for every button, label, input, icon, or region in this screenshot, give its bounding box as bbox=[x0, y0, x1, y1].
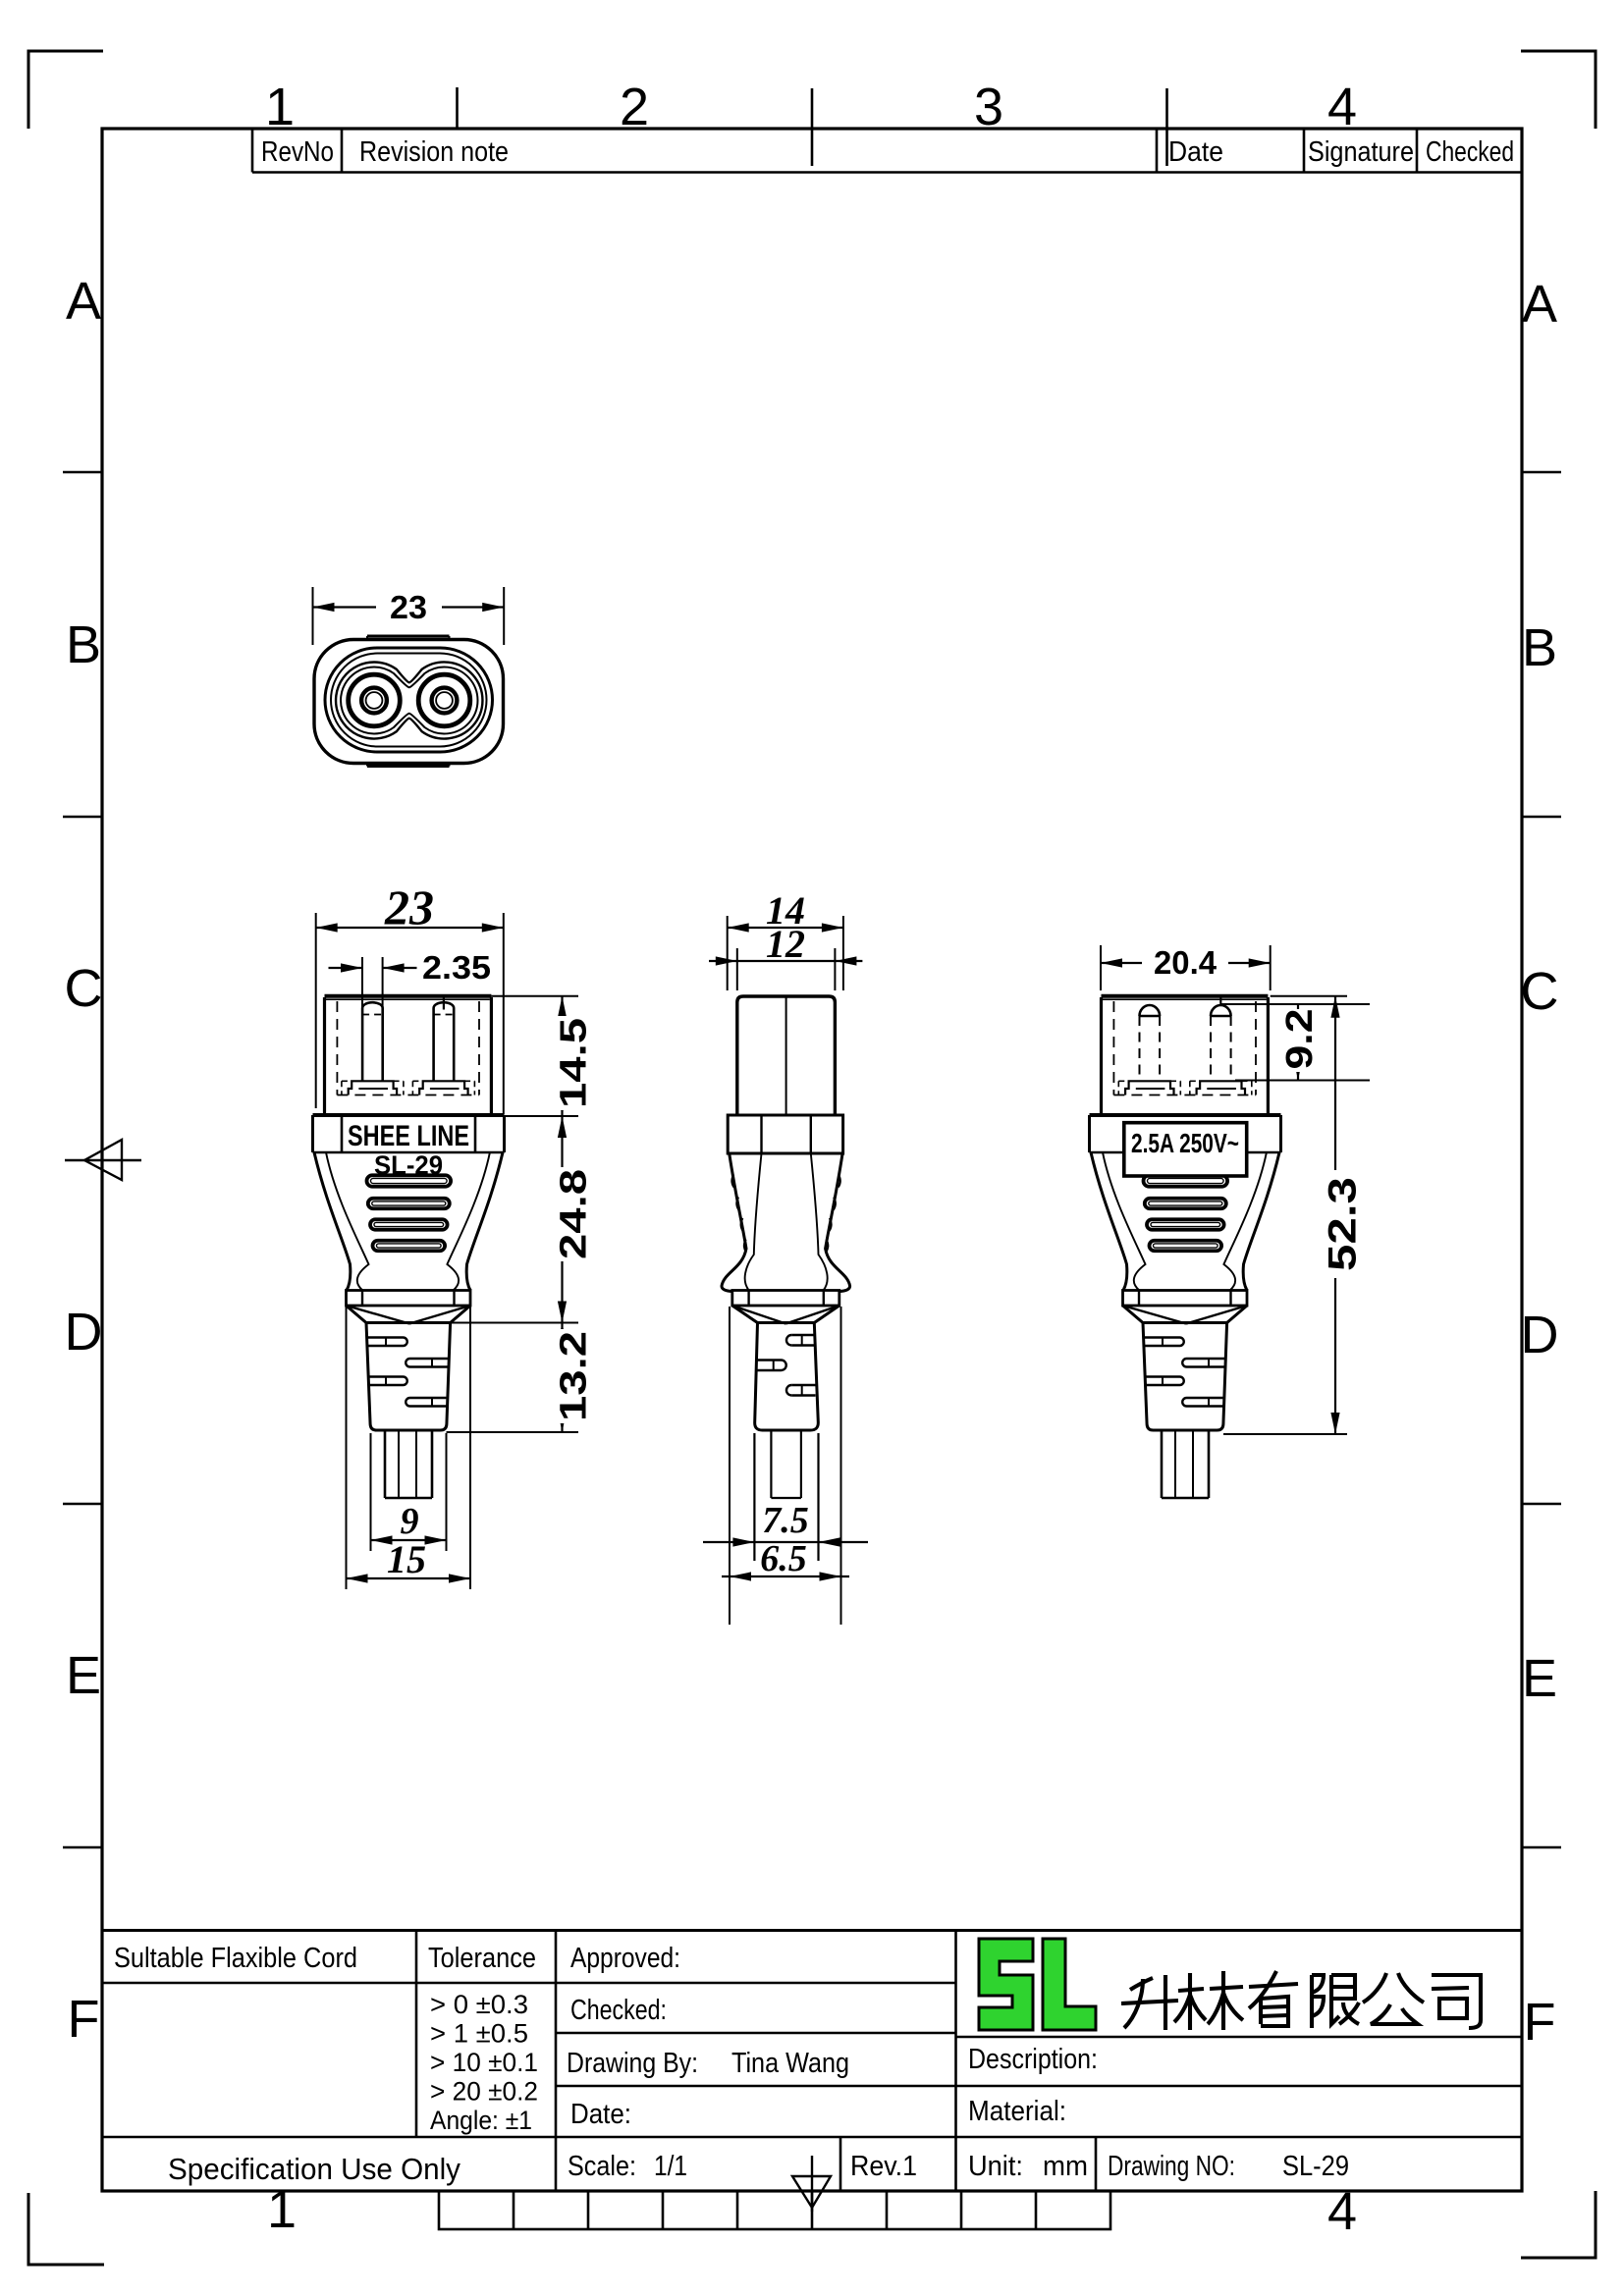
svg-text:C: C bbox=[1521, 962, 1559, 1021]
svg-text:B: B bbox=[1522, 618, 1557, 677]
svg-text:A: A bbox=[1522, 275, 1557, 334]
svg-text:9.2: 9.2 bbox=[1279, 1009, 1321, 1070]
svg-text:7.5: 7.5 bbox=[762, 1500, 809, 1541]
svg-text:> 20 ±0.2: > 20 ±0.2 bbox=[430, 2077, 538, 2107]
svg-text:Material:: Material: bbox=[968, 2096, 1066, 2127]
svg-text:1: 1 bbox=[265, 78, 295, 136]
svg-text:Checked:: Checked: bbox=[570, 1995, 667, 2026]
svg-text:2.35: 2.35 bbox=[422, 949, 491, 986]
svg-text:3: 3 bbox=[974, 78, 1003, 136]
svg-text:E: E bbox=[66, 1646, 101, 1705]
svg-text:Tina Wang: Tina Wang bbox=[731, 2048, 849, 2079]
svg-text:24.8: 24.8 bbox=[554, 1169, 595, 1259]
svg-text:23: 23 bbox=[390, 589, 427, 625]
svg-text:Rev.1: Rev.1 bbox=[850, 2151, 917, 2182]
svg-text:B: B bbox=[66, 615, 101, 674]
svg-text:Revision note: Revision note bbox=[359, 136, 509, 168]
svg-text:Description:: Description: bbox=[968, 2044, 1098, 2075]
svg-text:Unit:: Unit: bbox=[968, 2151, 1023, 2182]
svg-text:> 10 ±0.1: > 10 ±0.1 bbox=[430, 2048, 538, 2077]
svg-text:SL-29: SL-29 bbox=[1282, 2151, 1349, 2182]
svg-text:14.5: 14.5 bbox=[554, 1018, 595, 1108]
svg-text:mm: mm bbox=[1043, 2151, 1088, 2182]
svg-text:Specification Use Only: Specification Use Only bbox=[168, 2152, 460, 2186]
svg-text:1/1: 1/1 bbox=[654, 2151, 687, 2182]
svg-text:E: E bbox=[1522, 1649, 1557, 1708]
svg-text:Drawing By:: Drawing By: bbox=[567, 2048, 698, 2079]
svg-text:Approved:: Approved: bbox=[570, 1943, 680, 1974]
svg-text:A: A bbox=[66, 272, 101, 331]
svg-text:Tolerance: Tolerance bbox=[428, 1943, 536, 1974]
svg-text:SL-29: SL-29 bbox=[374, 1150, 443, 1180]
svg-text:Drawing NO:: Drawing NO: bbox=[1108, 2151, 1235, 2182]
svg-text:52.3: 52.3 bbox=[1321, 1177, 1364, 1271]
svg-text:13.2: 13.2 bbox=[554, 1331, 595, 1421]
svg-text:4: 4 bbox=[1327, 2182, 1357, 2241]
svg-text:9: 9 bbox=[401, 1501, 419, 1542]
svg-text:Date: Date bbox=[1168, 136, 1223, 168]
svg-text:Checked: Checked bbox=[1426, 136, 1514, 168]
svg-text:2.5A 250V~: 2.5A 250V~ bbox=[1131, 1128, 1239, 1158]
svg-text:23: 23 bbox=[384, 880, 434, 934]
svg-text:Signature: Signature bbox=[1308, 136, 1414, 168]
svg-text:F: F bbox=[1524, 1993, 1556, 2052]
svg-text:> 1 ±0.5: > 1 ±0.5 bbox=[430, 2019, 528, 2049]
svg-text:D: D bbox=[65, 1303, 103, 1362]
svg-text:Scale:: Scale: bbox=[568, 2151, 636, 2182]
svg-text:SHEE LINE: SHEE LINE bbox=[348, 1120, 469, 1152]
svg-text:12: 12 bbox=[766, 922, 805, 966]
svg-text:2: 2 bbox=[620, 78, 649, 136]
svg-text:D: D bbox=[1521, 1306, 1559, 1364]
svg-text:6.5: 6.5 bbox=[760, 1538, 807, 1579]
svg-text:> 0 ±0.3: > 0 ±0.3 bbox=[430, 1990, 528, 2019]
svg-text:1: 1 bbox=[267, 2180, 297, 2239]
svg-text:15: 15 bbox=[387, 1537, 426, 1581]
svg-text:Date:: Date: bbox=[570, 2099, 631, 2130]
svg-text:F: F bbox=[68, 1990, 100, 2049]
svg-text:20.4: 20.4 bbox=[1154, 944, 1218, 981]
svg-text:RevNo: RevNo bbox=[261, 136, 334, 168]
svg-text:4: 4 bbox=[1327, 78, 1357, 136]
svg-text:Angle: ±1: Angle: ±1 bbox=[430, 2106, 532, 2135]
svg-text:Sultable Flaxible Cord: Sultable Flaxible Cord bbox=[114, 1943, 357, 1974]
svg-text:C: C bbox=[65, 959, 103, 1018]
